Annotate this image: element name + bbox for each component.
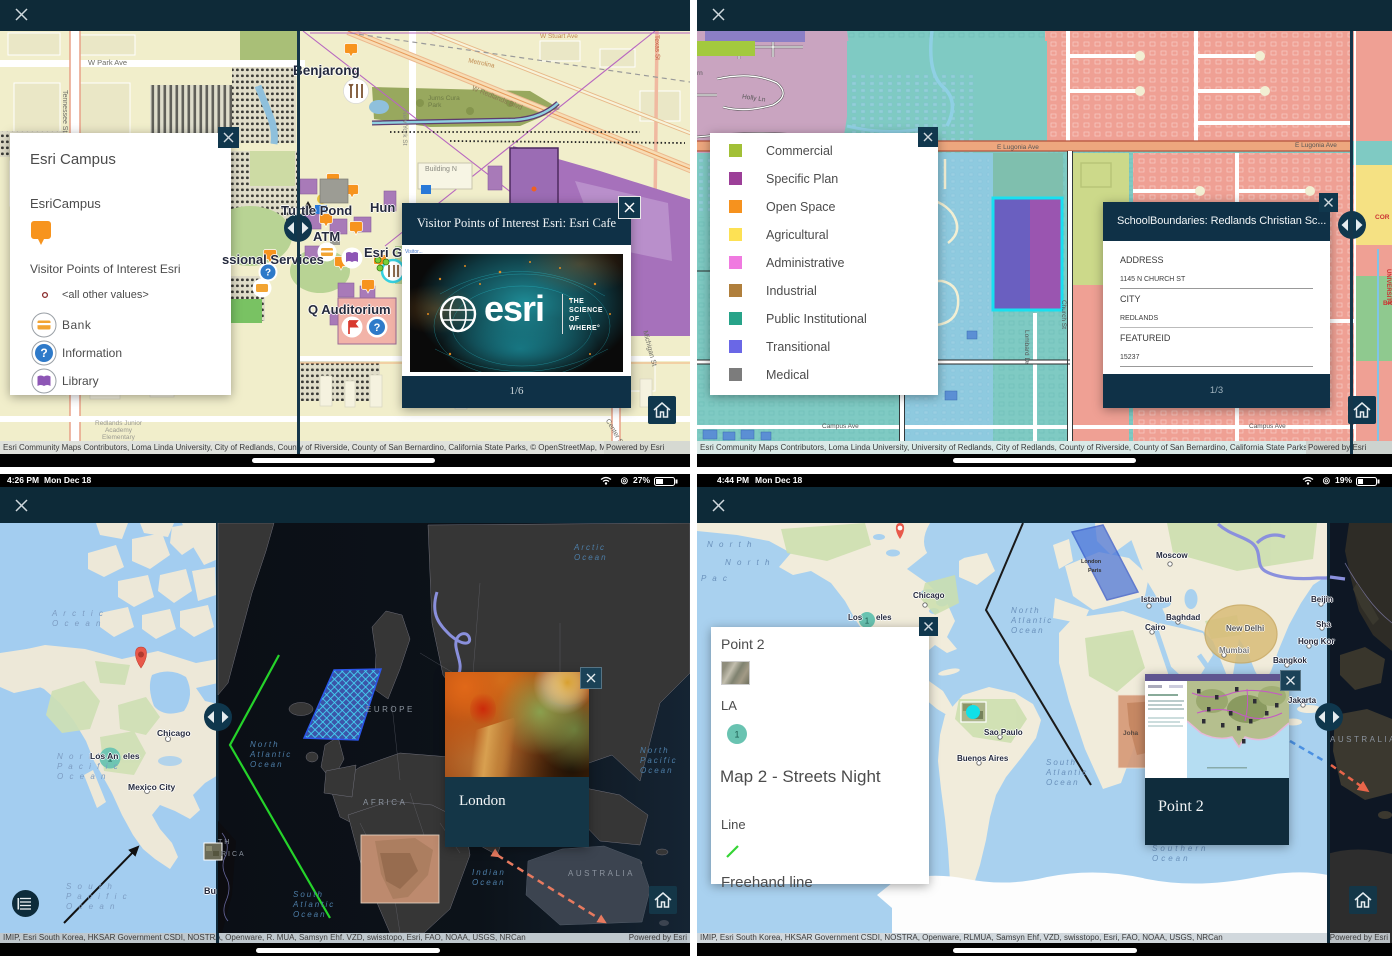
svg-text:1: 1	[734, 730, 739, 740]
svg-text:?: ?	[374, 322, 381, 334]
svg-text:1: 1	[865, 617, 870, 626]
svg-text:?: ?	[40, 346, 47, 360]
svg-text:?: ?	[265, 268, 271, 279]
